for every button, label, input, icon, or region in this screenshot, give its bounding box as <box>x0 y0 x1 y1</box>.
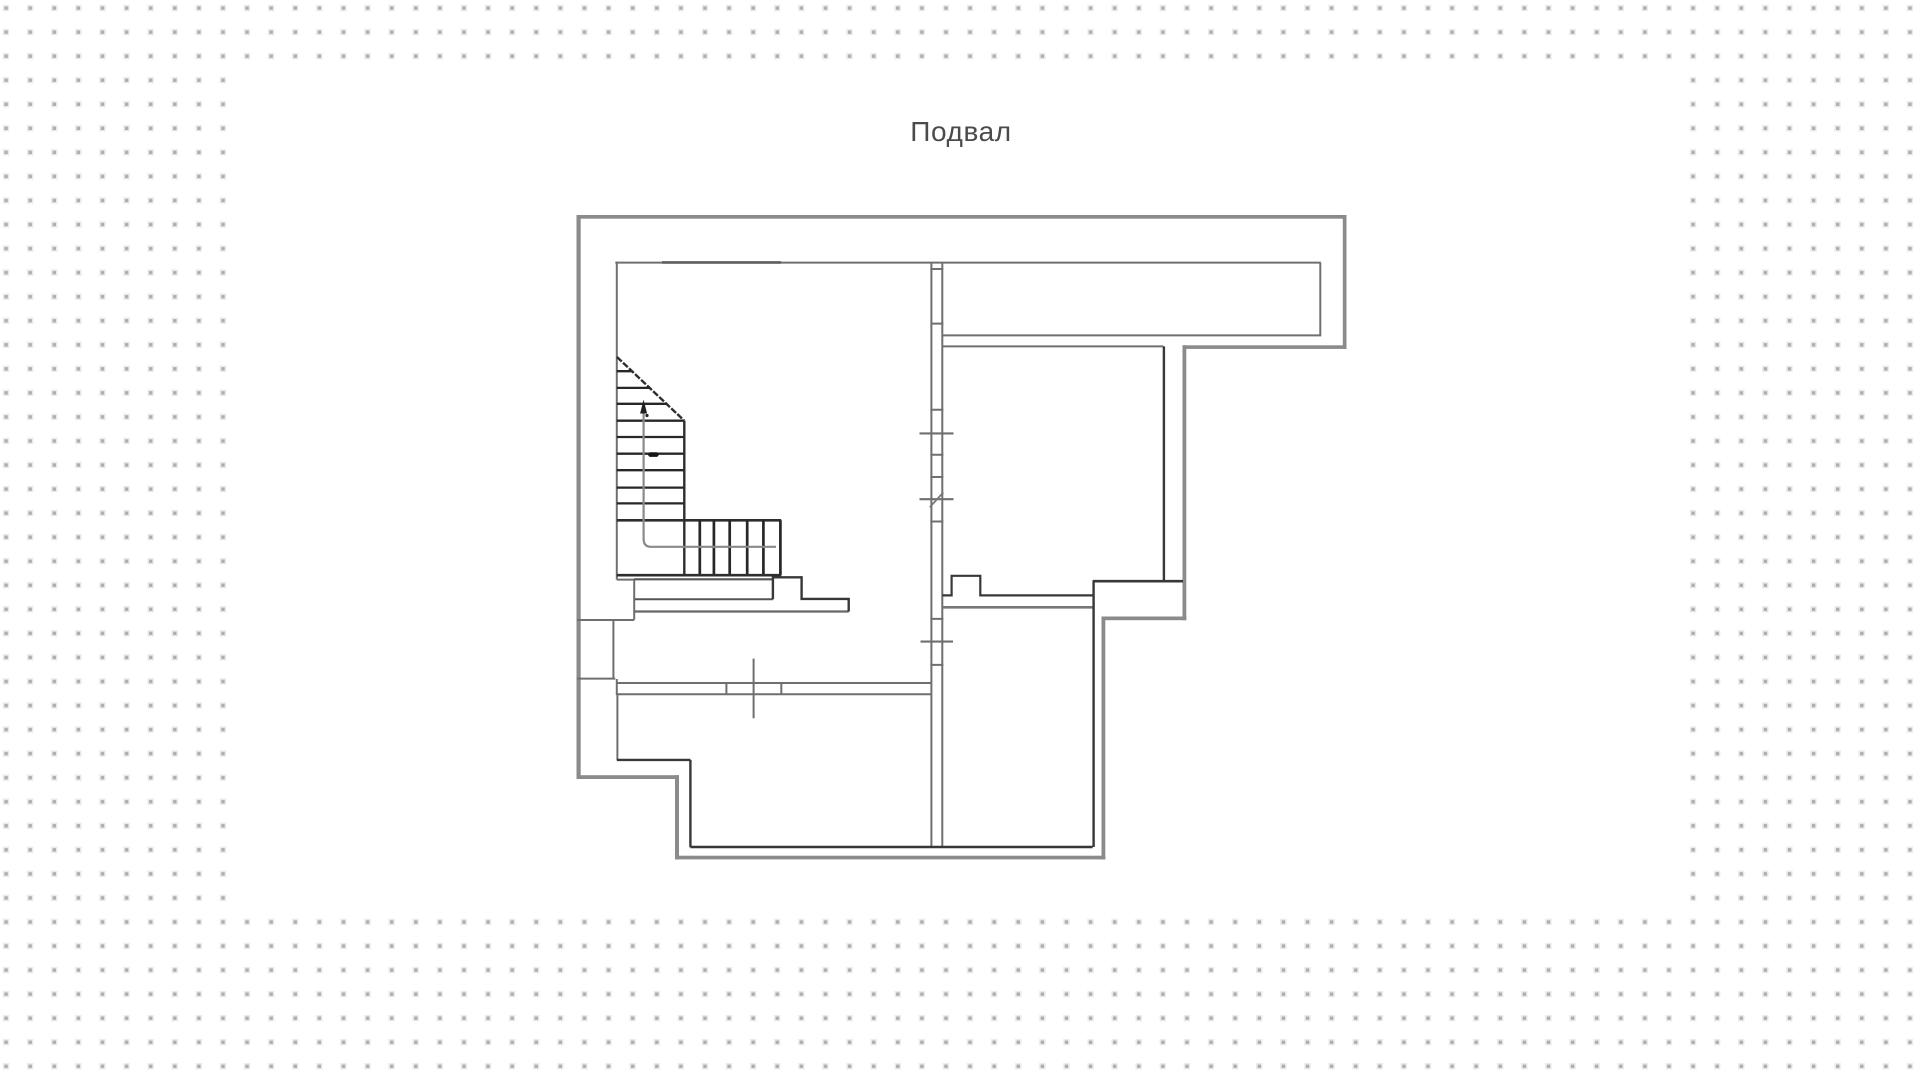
svg-text:Подвал: Подвал <box>910 116 1012 147</box>
